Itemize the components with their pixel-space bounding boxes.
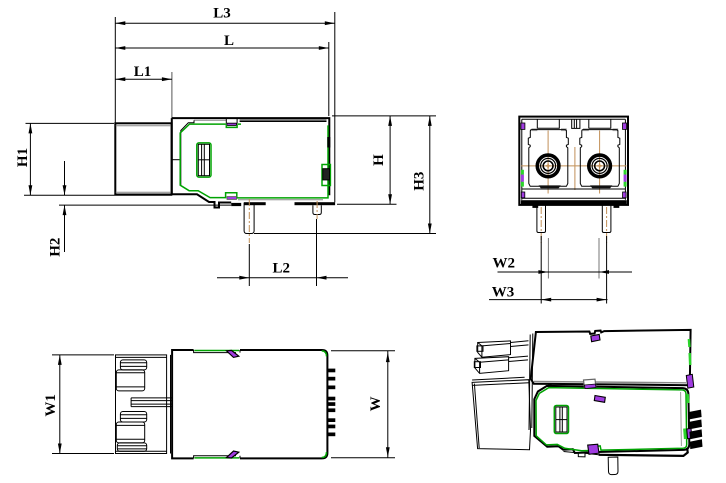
svg-text:H: H <box>371 154 387 166</box>
svg-text:W: W <box>368 396 384 411</box>
svg-text:L2: L2 <box>273 261 291 277</box>
svg-text:H3: H3 <box>412 172 428 191</box>
svg-text:W2: W2 <box>492 256 515 272</box>
svg-text:H1: H1 <box>15 148 31 167</box>
svg-text:W3: W3 <box>492 285 515 301</box>
svg-text:W1: W1 <box>43 394 59 417</box>
svg-text:L1: L1 <box>134 64 152 80</box>
svg-text:L: L <box>224 33 234 49</box>
svg-text:H2: H2 <box>47 238 63 257</box>
svg-text:L3: L3 <box>213 6 231 22</box>
